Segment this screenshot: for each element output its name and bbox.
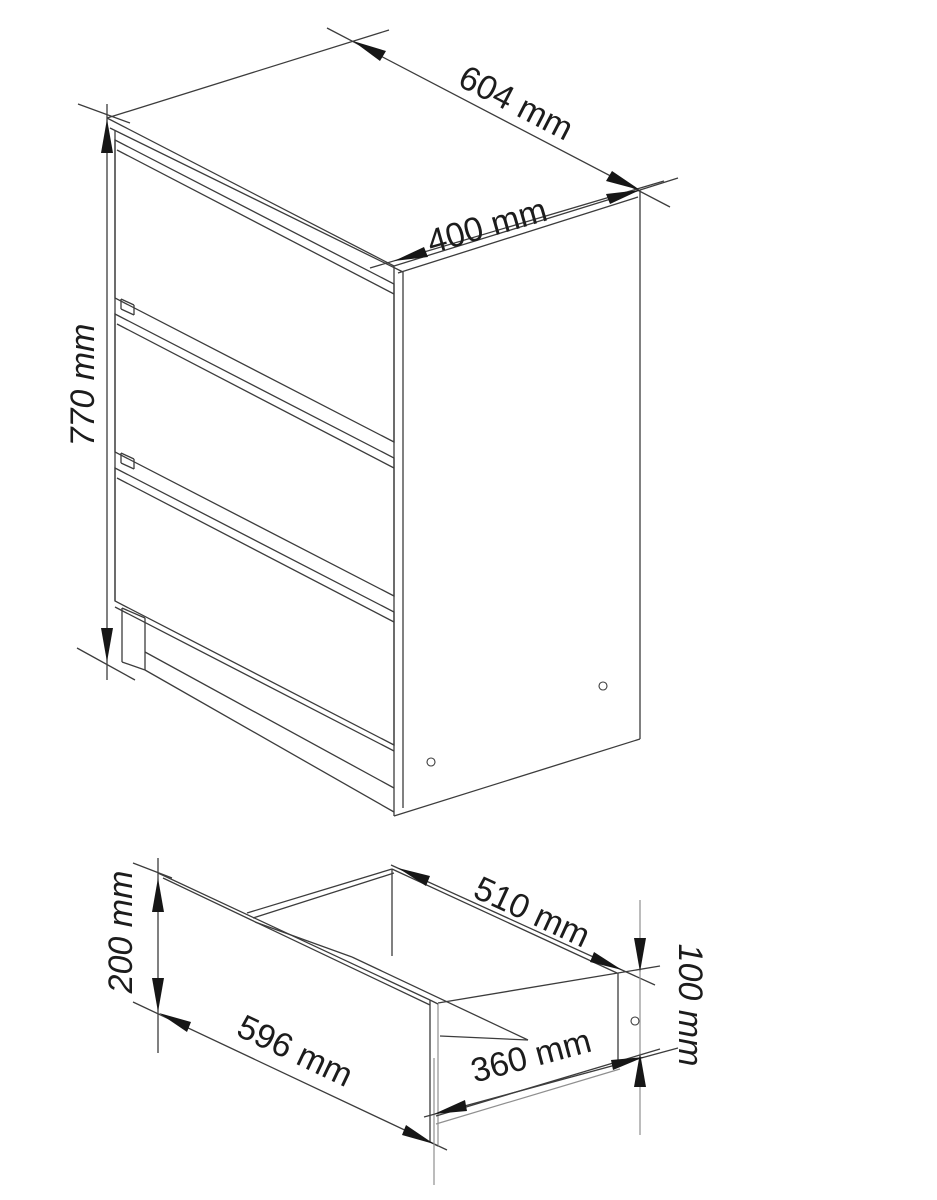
drawer-box <box>247 869 660 1124</box>
cabinet-drawer-gap-notches <box>121 299 134 469</box>
dim-label-drawer-front-height: 200 mm <box>102 871 140 995</box>
figure-cabinet: 604 mm 400 mm 770 mm <box>64 28 678 816</box>
dim-label-drawer-side-height: 100 mm <box>671 944 709 1067</box>
dim-label-drawer-front-width: 596 mm <box>231 1008 358 1095</box>
cabinet-drawer-front-3 <box>115 468 394 745</box>
cabinet-top-face <box>107 28 678 273</box>
dim-label-cabinet-height: 770 mm <box>64 324 102 447</box>
drawer-front-panel <box>133 858 447 1150</box>
dim-label-drawer-depth: 360 mm <box>467 1022 595 1090</box>
cabinet-drawer-front-1 <box>115 140 394 442</box>
screw-hole <box>427 758 435 766</box>
cabinet-side-panel <box>394 190 640 816</box>
cabinet-dimensions: 604 mm 400 mm 770 mm <box>64 41 664 680</box>
dim-label-cabinet-depth: 400 mm <box>423 191 552 261</box>
cabinet-left-edge <box>107 104 115 680</box>
figure-drawer: 596 mm 200 mm 510 mm 360 mm 100 mm <box>102 858 709 1185</box>
dim-label-drawer-inner-width: 510 mm <box>468 869 595 955</box>
technical-drawing-page: 604 mm 400 mm 770 mm <box>0 0 937 1200</box>
screw-hole <box>599 682 607 690</box>
cabinet-base <box>115 607 394 812</box>
cabinet-drawer-front-2 <box>115 314 394 596</box>
screw-hole <box>631 1017 639 1025</box>
technical-drawing: 604 mm 400 mm 770 mm <box>0 0 937 1200</box>
